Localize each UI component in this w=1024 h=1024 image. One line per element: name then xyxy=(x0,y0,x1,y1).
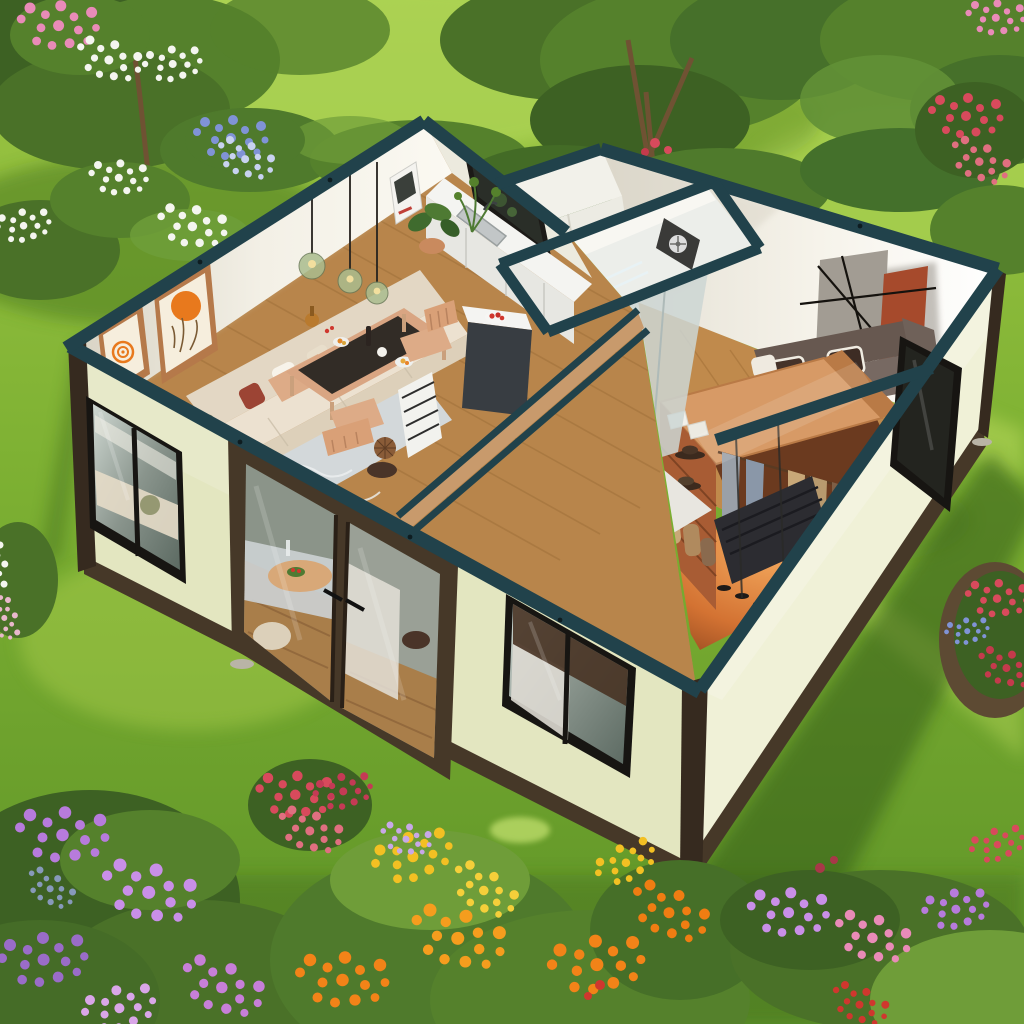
render-scene xyxy=(0,0,1024,1024)
wine-bottle xyxy=(366,326,371,346)
kitchen-island xyxy=(462,306,532,416)
island-base xyxy=(462,322,532,416)
art-sun xyxy=(171,291,201,321)
fan-side-table xyxy=(367,462,397,478)
white-mug xyxy=(377,347,387,357)
